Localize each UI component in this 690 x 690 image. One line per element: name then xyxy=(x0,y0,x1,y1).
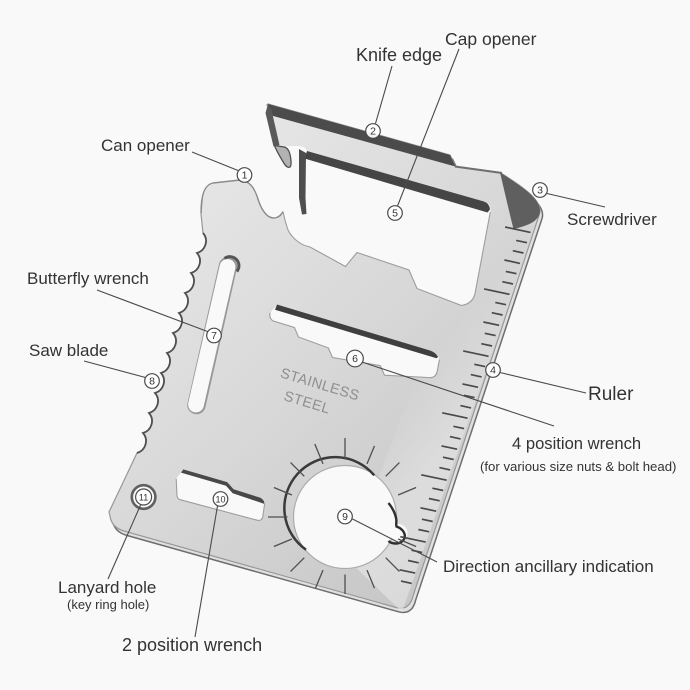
svg-text:8: 8 xyxy=(149,376,155,388)
svg-text:4: 4 xyxy=(490,365,496,377)
svg-text:3: 3 xyxy=(537,185,543,197)
svg-text:2: 2 xyxy=(370,126,376,138)
svg-text:7: 7 xyxy=(211,330,217,342)
svg-text:10: 10 xyxy=(215,495,225,505)
svg-text:9: 9 xyxy=(342,511,348,523)
svg-text:1: 1 xyxy=(242,170,248,182)
svg-text:6: 6 xyxy=(352,353,358,365)
svg-text:5: 5 xyxy=(392,208,398,220)
svg-text:11: 11 xyxy=(139,493,148,503)
